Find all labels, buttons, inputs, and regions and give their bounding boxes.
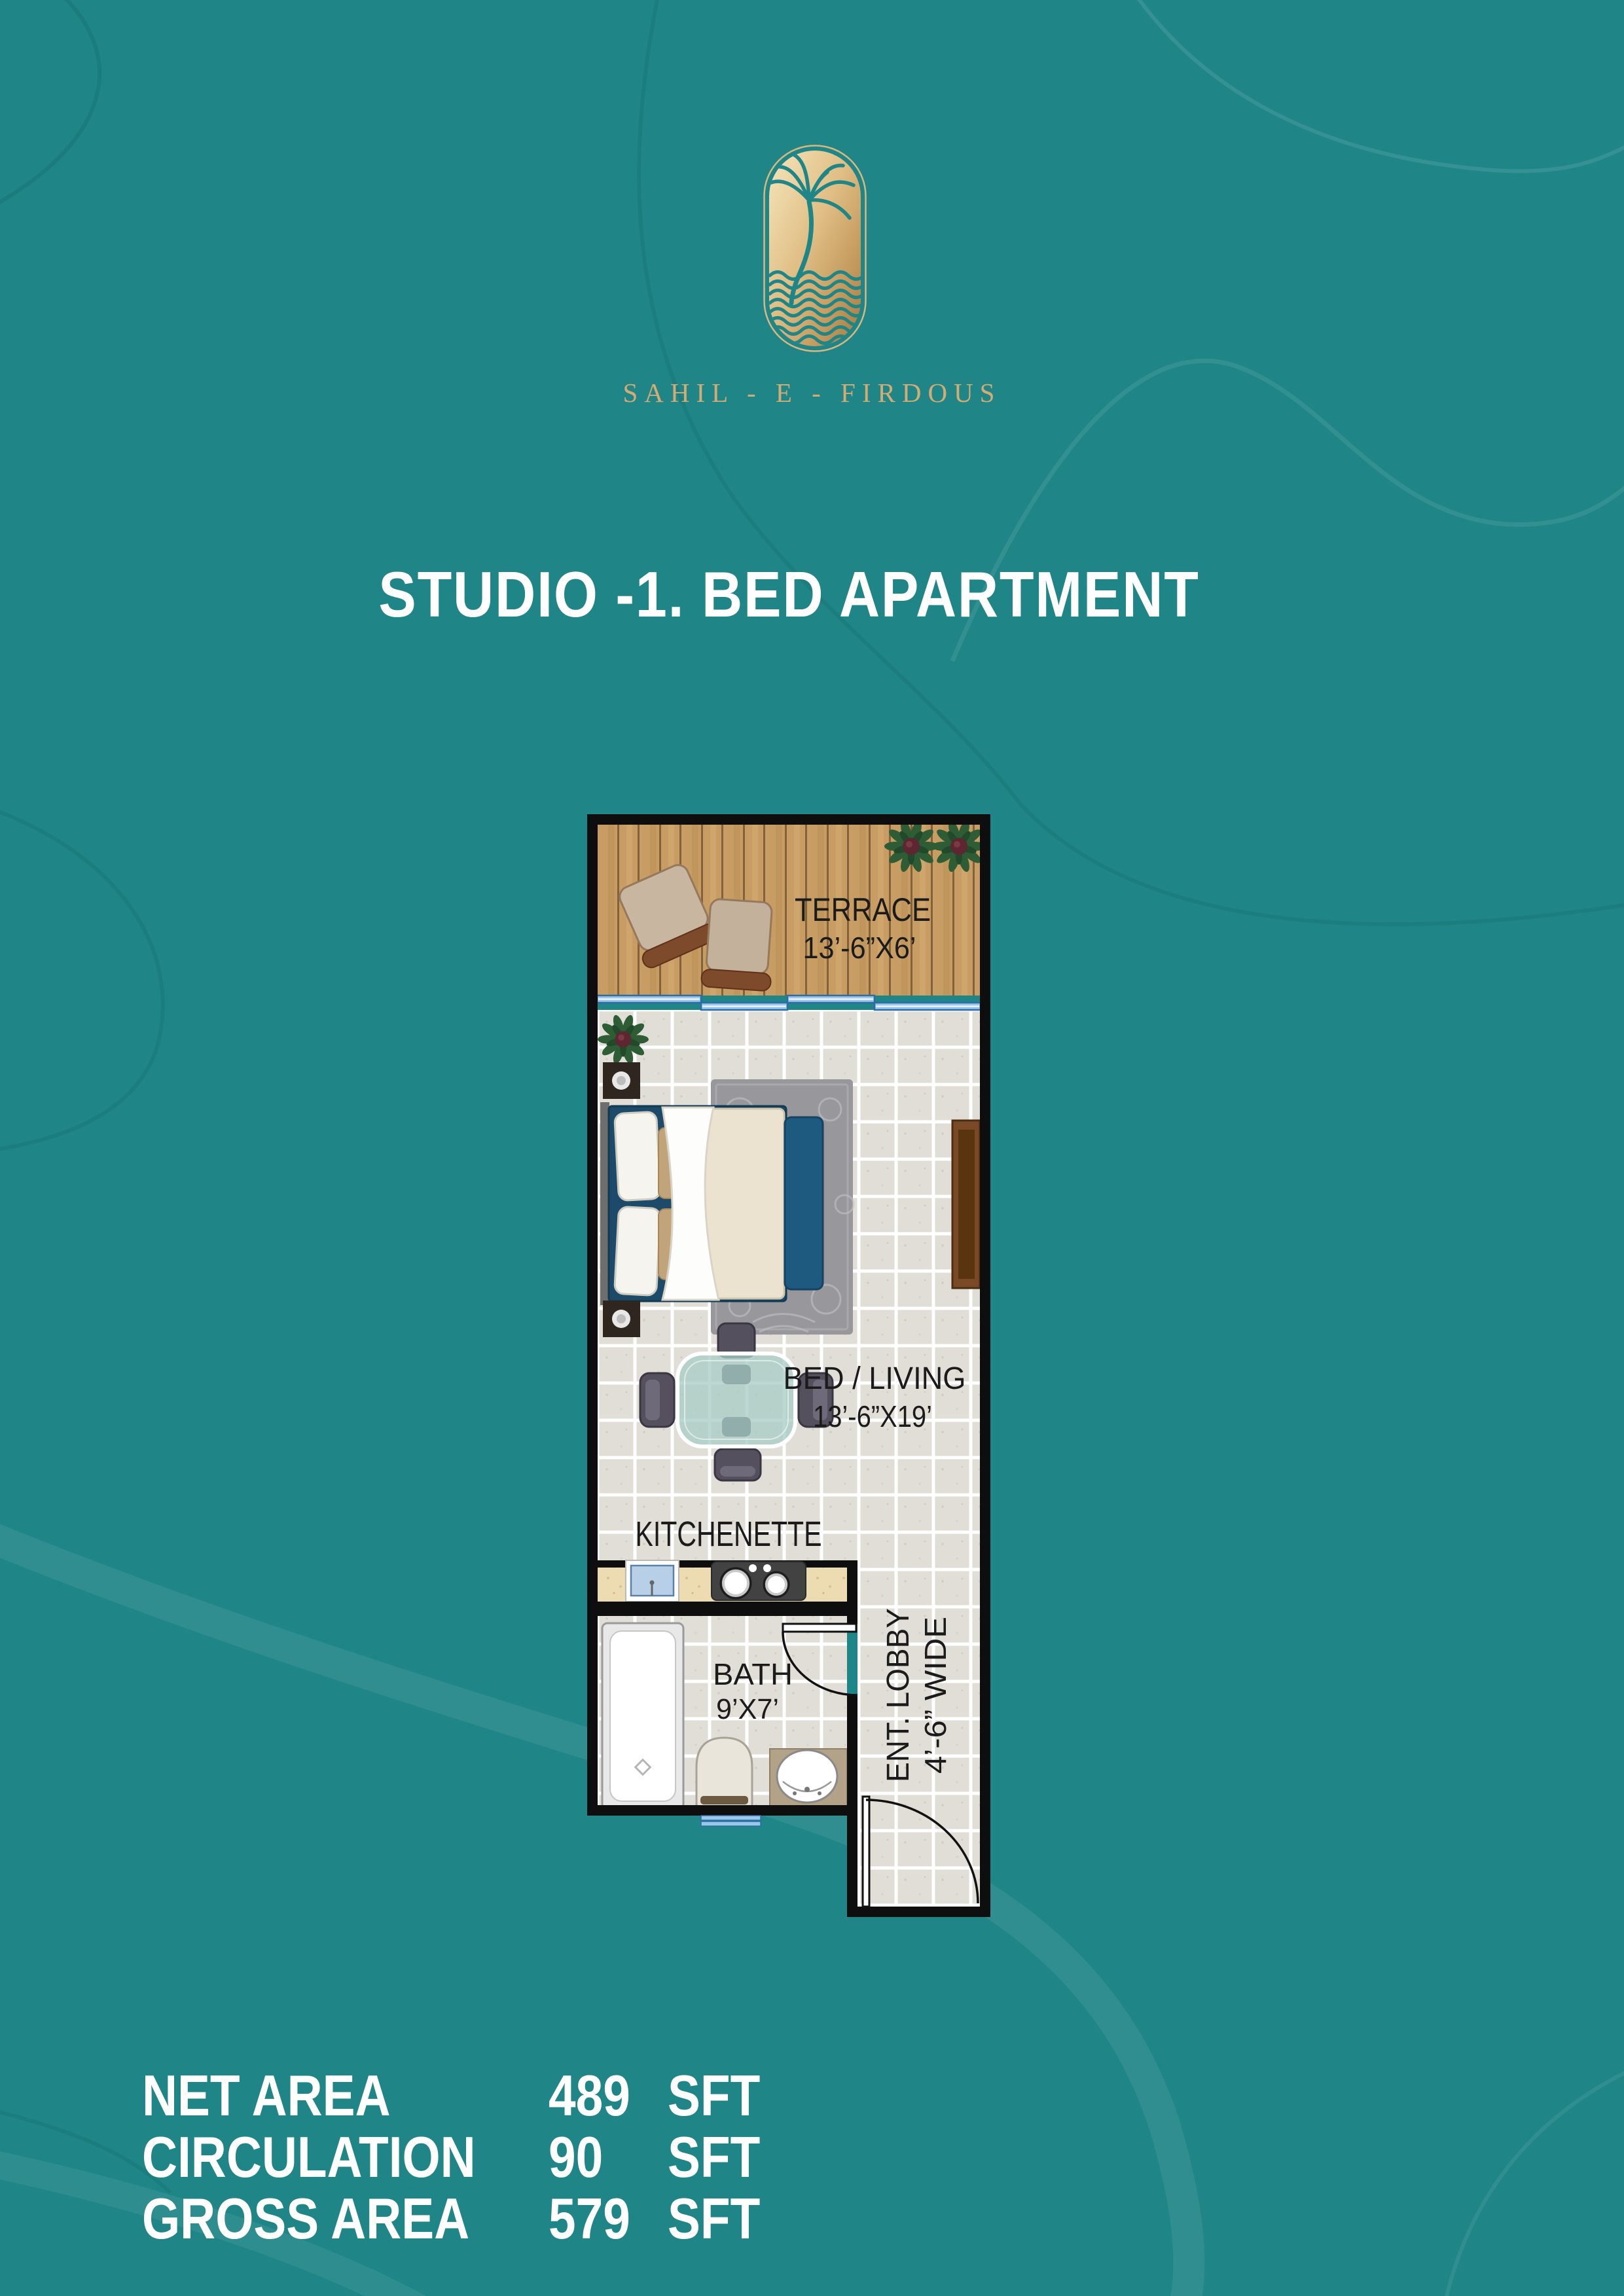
terrace-dimensions: 13’-6”X6’ — [803, 931, 916, 965]
kitchen-sink — [626, 1560, 679, 1602]
bed — [600, 1102, 786, 1305]
floor-plan: TERRACE 13’-6”X6’ BED / LIVING 13’-6”X19… — [587, 814, 990, 1917]
stat-value: 90 — [549, 2124, 603, 2191]
stat-label: NET AREA — [142, 2062, 391, 2129]
bath-label: BATH — [713, 1657, 793, 1691]
nightstand — [603, 1062, 640, 1099]
stat-row-net-area: NET AREA 489 SFT — [0, 2062, 1624, 2125]
dining-table — [677, 1354, 795, 1446]
brand-logo — [763, 145, 867, 352]
terrace-window — [597, 996, 981, 1010]
bed-bench — [785, 1117, 823, 1289]
page-title: STUDIO -1. BED APARTMENT — [95, 558, 1484, 632]
tv-cabinet — [952, 1121, 980, 1288]
lobby-label: ENT. LOBBY — [881, 1608, 916, 1782]
bed-living-dimensions: 13’-6”X19’ — [813, 1399, 932, 1433]
vanity-sink — [770, 1749, 847, 1808]
lobby-dimensions: 4’-6” WIDE — [918, 1617, 952, 1774]
toilet — [696, 1738, 752, 1808]
bath-dimensions: 9’X7’ — [716, 1693, 779, 1725]
nightstand — [603, 1300, 640, 1337]
stat-unit: SFT — [668, 2185, 760, 2252]
stat-row-circulation: CIRCULATION 90 SFT — [0, 2124, 1624, 2187]
brochure-page: SAHIL - E - FIRDOUS STUDIO -1. BED APART… — [0, 0, 1624, 2296]
bathtub — [602, 1623, 683, 1809]
bath-window — [701, 1816, 761, 1826]
terrace-label: TERRACE — [795, 891, 931, 928]
stat-label: GROSS AREA — [142, 2185, 469, 2252]
logo-capsule — [769, 151, 861, 346]
stat-label: CIRCULATION — [142, 2124, 476, 2191]
terrace-chair — [701, 898, 776, 991]
stat-unit: SFT — [668, 2124, 760, 2191]
stove-cooktop — [712, 1562, 806, 1600]
stat-value: 579 — [549, 2185, 630, 2252]
stat-value: 489 — [549, 2062, 630, 2129]
brand-name: SAHIL - E - FIRDOUS — [0, 377, 1624, 408]
stat-unit: SFT — [668, 2062, 760, 2129]
stat-row-gross-area: GROSS AREA 579 SFT — [0, 2185, 1624, 2248]
kitchenette-label: KITCHENETTE — [636, 1515, 822, 1554]
bed-living-label: BED / LIVING — [784, 1361, 966, 1396]
